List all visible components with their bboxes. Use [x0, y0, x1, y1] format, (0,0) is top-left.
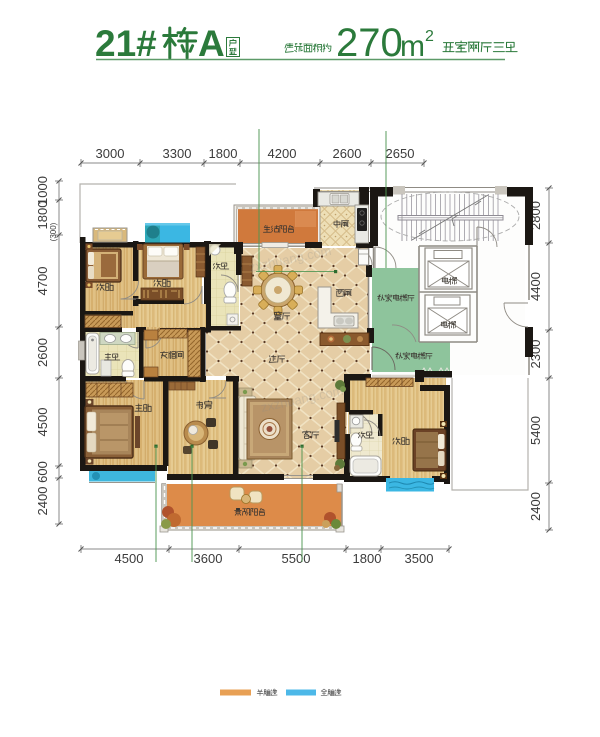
- svg-text:5500: 5500: [282, 551, 311, 566]
- svg-text:5400: 5400: [528, 416, 543, 445]
- svg-text:600: 600: [35, 461, 50, 483]
- svg-text:1800: 1800: [35, 201, 50, 230]
- svg-text:m: m: [400, 30, 425, 63]
- svg-text:4500: 4500: [35, 408, 50, 437]
- svg-text:3500: 3500: [405, 551, 434, 566]
- svg-text:A: A: [198, 23, 225, 64]
- svg-text:2650: 2650: [386, 146, 415, 161]
- svg-text:2: 2: [425, 28, 434, 45]
- svg-text:270: 270: [336, 21, 403, 65]
- svg-text:4400: 4400: [528, 272, 543, 301]
- svg-text:1800: 1800: [353, 551, 382, 566]
- svg-text:1800: 1800: [209, 146, 238, 161]
- svg-text:3300: 3300: [163, 146, 192, 161]
- svg-text:4500: 4500: [115, 551, 144, 566]
- svg-text:3600: 3600: [194, 551, 223, 566]
- svg-text:(300): (300): [49, 222, 58, 241]
- svg-text:2400: 2400: [35, 487, 50, 516]
- svg-text:4200: 4200: [268, 146, 297, 161]
- svg-text:3000: 3000: [96, 146, 125, 161]
- svg-text:2600: 2600: [35, 338, 50, 367]
- svg-text:21#: 21#: [95, 23, 157, 64]
- svg-text:2400: 2400: [528, 492, 543, 521]
- svg-text:4700: 4700: [35, 267, 50, 296]
- svg-text:2600: 2600: [333, 146, 362, 161]
